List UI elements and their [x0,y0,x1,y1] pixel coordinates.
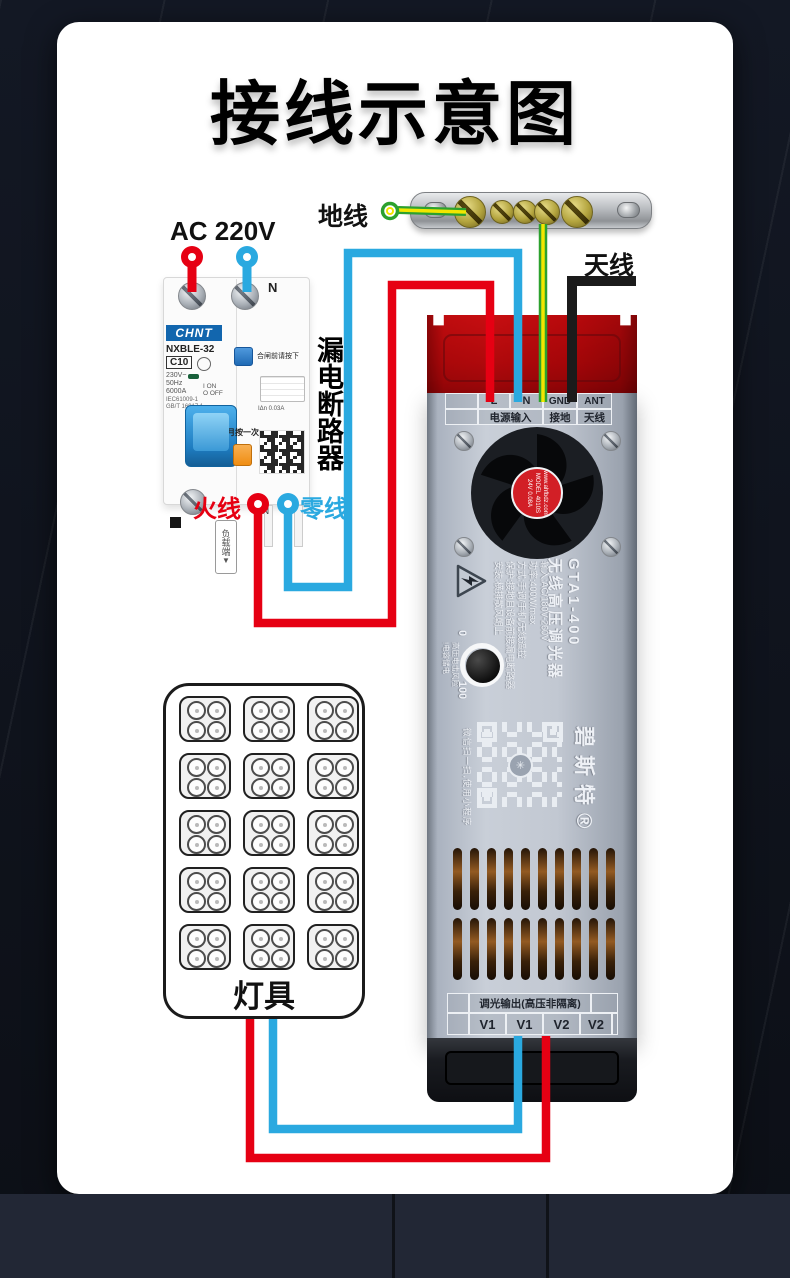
poster-background: 接线示意图 地线 天线 AC 220V N CHNT NXBLE-32 C10 … [0,0,790,1278]
lamp-led [315,835,334,854]
input-terminal-N: N [510,393,543,409]
vent-grille [447,840,619,992]
vent-slot [521,848,530,910]
vent-slot [555,848,564,910]
lamp-led [315,815,334,834]
lamp-led [271,949,290,968]
status-indicator [188,374,199,379]
lamp-module [307,696,359,742]
lamp-led [207,758,226,777]
lamp-led [271,758,290,777]
breaker-brand-logo: CHNT [166,325,222,341]
breaker-breaking-capacity: 6000A [166,388,186,395]
lamp-led [207,872,226,891]
vent-slot [538,848,547,910]
qr-module [301,470,305,474]
dimmer-bottom-cap-panel [445,1051,619,1085]
breaker-standard-1: IEC61009-1 [166,397,198,403]
breaker-test-button [233,444,252,466]
input-terminal-cell-empty [445,393,478,409]
output-cell-empty [612,1013,618,1035]
dimmer-warning-text: 高压电击风险 !电容储电 [441,642,460,712]
breaker-on-mark: I ON [203,383,216,390]
lamp-led [187,721,206,740]
lamp-led [207,929,226,948]
lamp-led [187,778,206,797]
output-terminal-V2b: V2 [580,1013,612,1035]
vent-slot [572,848,581,910]
input-group-cell-empty [445,409,478,425]
lamp-module [307,924,359,970]
lamp-led [207,892,226,911]
lamp-led [335,721,354,740]
vent-slot [487,848,496,910]
knob-min-label: 0 [456,630,468,636]
breaker-qr-code [259,430,305,474]
vent-slot [453,848,462,910]
down-arrow-icon: ▼ [222,556,230,565]
qr-position-marker [477,722,497,742]
lamp-led [335,835,354,854]
lamp-led [271,835,290,854]
breaker-model: NXBLE-32 [166,344,214,355]
qr-module [487,782,492,787]
vent-slot [606,848,615,910]
vent-slot [487,918,496,980]
qr-module [293,470,297,474]
qr-module [517,727,522,732]
input-terminal-GND: GND [543,393,577,409]
qr-module [557,792,562,797]
lamp-led [207,835,226,854]
lamp-led [251,835,270,854]
qr-module [492,777,497,782]
output-title: 调光输出(高压非隔离) [469,993,591,1013]
lamp-led [251,701,270,720]
ground-bar-screw [454,196,486,228]
lamp-led [271,815,290,834]
lamp-led [335,701,354,720]
output-terminal-V2a: V2 [543,1013,580,1035]
lamp-led [315,758,334,777]
lamp-led [315,892,334,911]
breaker-reset-note: 合闸前请按下 [257,351,299,361]
vent-slot [606,918,615,980]
spec-input: 输入:AC/180V-260V [538,561,550,716]
dimmer-knob [466,649,500,683]
lamp-led [207,815,226,834]
qr-module [492,752,497,757]
ground-bar-screw [534,199,560,225]
knob-max-label: 100 [456,681,468,699]
lamp-led [271,721,290,740]
vent-slot [572,918,581,980]
lamp-module [307,753,359,799]
breaker-off-mark: O OFF [203,390,223,397]
output-terminal-V1b: V1 [506,1013,543,1035]
input-group-ground: 接地 [543,409,577,425]
lamp-led [187,758,206,777]
input-terminal-ANT: ANT [577,393,612,409]
output-cell-empty [591,993,618,1013]
vent-slot [589,918,598,980]
lamp-module [243,753,295,799]
qr-module [537,732,542,737]
input-group-antenna: 天线 [577,409,612,425]
vent-slot [589,848,598,910]
lamp-led [251,929,270,948]
qr-module [286,470,290,474]
lamp-module [243,810,295,856]
qr-module [264,442,268,446]
lamp-led [271,701,290,720]
dimmer-model-name: GTA1-400 无线高压调光器 [545,558,583,718]
qr-module [279,470,283,474]
input-terminal-L: L [478,393,510,409]
breaker-voltage: 230V~ [166,372,186,379]
qr-module [537,782,542,787]
lamp-led [315,949,334,968]
qr-module [271,470,275,474]
qr-module [512,782,517,787]
input-group-power: 电源输入 [478,409,543,425]
breaker-frequency: 50Hz [166,380,182,387]
neutral-wire-label: 零线 [300,489,348,524]
lamp-led [335,778,354,797]
high-voltage-warning-icon [454,564,488,598]
lamp-led [251,721,270,740]
lamp-led [251,949,270,968]
live-wire-label: 火线 [193,489,241,524]
lamp-led [315,701,334,720]
breaker-leakage-current: IΔn 0.03A [258,406,284,412]
lamp-module [179,810,231,856]
lamp-led [187,949,206,968]
vent-slot [538,918,547,980]
cooling-fan: www.ahfbdz.com MODEL 4010S 24V 0.08A [468,424,606,562]
qr-module [557,782,562,787]
breaker-top-screw-right [231,282,259,310]
lamp-led [315,721,334,740]
lamp-led [251,872,270,891]
fan-sticker-url: www.ahfbdz.com [542,469,548,515]
qr-module [502,802,507,807]
warning-line-2: !电容储电 [441,642,451,712]
lamp-led [251,892,270,911]
breaker-din-clip [170,517,181,528]
lamp-led [207,701,226,720]
qr-module [542,777,547,782]
breaker-neutral-mark-bottom: N [262,506,269,517]
dimmer-model: GTA1-400 [564,558,583,718]
dimmer-top-cap-panel [443,334,621,382]
lamp-module [243,696,295,742]
lamp-led [251,778,270,797]
lamp-module [179,924,231,970]
qr-module [542,752,547,757]
breaker-neutral-mark-top: N [268,280,277,295]
vent-slot [470,848,479,910]
dimmer-specs: 输入:AC/180V-260V 功率:400W/max 方式:手调/手机/无线遥… [492,561,550,716]
vent-slot [470,918,479,980]
lamp-led [187,872,206,891]
fan-sticker-rating: 24V 0.08A [526,479,532,507]
qr-module [264,470,268,474]
lamp-led [335,815,354,834]
qr-module [293,442,297,446]
lamp-led [207,721,226,740]
lamp-led [271,892,290,911]
output-terminal-V1a: V1 [469,1013,506,1035]
ccc-mark-icon [197,357,211,371]
lamp-label: 灯具 [163,971,365,1016]
ground-terminal-bar [410,192,652,229]
qr-module [293,456,297,460]
output-cell-empty [447,1013,469,1035]
vent-slot [521,918,530,980]
ground-bar-screws [411,193,653,230]
lamp-led [207,778,226,797]
qr-module [542,802,547,807]
qr-position-marker [477,788,497,808]
lamp-led [335,872,354,891]
qr-module [517,802,522,807]
qr-module [512,732,517,737]
qr-module [537,757,542,762]
warning-line-1: 高压电击风险 [451,642,461,712]
lamp-fixture [163,683,365,1019]
vent-slot [453,918,462,980]
fan-sticker-model: MODEL 4010S [534,473,540,513]
qr-note: 微信扫一扫,使用小程序 [461,728,473,848]
lamp-module [179,696,231,742]
qr-module [487,757,492,762]
spec-mounting: 安装:横排散风朝上 [492,561,504,716]
ground-wire-label: 地线 [318,197,368,233]
load-side-tab: 负载端 ▼ [215,520,237,574]
breaker-pole-divider [236,279,237,503]
qr-module [279,442,283,446]
qr-module [552,802,557,807]
qr-module [557,742,562,747]
qr-module [527,802,532,807]
output-cell-empty [447,993,469,1013]
ac-input-label: AC 220V [170,216,276,247]
qr-position-marker [543,722,563,742]
lamp-led [187,835,206,854]
lamp-module [179,753,231,799]
ground-bar-screw [490,200,514,224]
breaker-name-label: 漏电断路器 [312,336,343,471]
lamp-led [271,872,290,891]
lamp-led [187,892,206,911]
lamp-led [187,701,206,720]
spec-protection: 保护:接地且设备前接漏电断路器 [504,561,516,716]
lamp-led [335,929,354,948]
breaker-reset-button [234,347,253,366]
lamp-led [271,929,290,948]
lamp-led [335,758,354,777]
lamp-led [335,949,354,968]
lamp-led [315,929,334,948]
lamp-led [187,929,206,948]
qr-logo-icon: ✳ [508,753,533,778]
lamp-led [315,872,334,891]
lamp-module [307,867,359,913]
lamp-module [243,867,295,913]
vent-slot [504,848,513,910]
lamp-led [251,758,270,777]
page-title: 接线示意图 [57,58,733,159]
qr-module [279,456,283,460]
vent-slot [504,918,513,980]
background-bottom-band [0,1194,790,1278]
lamp-module [243,924,295,970]
qr-module [557,757,562,762]
qr-module [264,456,268,460]
breaker-top-screw-left [178,282,206,310]
lamp-led [335,892,354,911]
lamp-module [179,867,231,913]
ground-bar-screw [561,196,593,228]
breaker-toggle-face [193,413,229,451]
qr-module [557,767,562,772]
vent-slot [555,918,564,980]
antenna-label: 天线 [584,246,634,282]
breaker-rating: C10 [166,356,192,369]
lamp-led [271,778,290,797]
spec-power: 功率:400W/max [527,561,539,716]
load-side-label: 负载端 [220,529,233,556]
trip-curve-diagram [260,376,305,402]
lamp-led [251,815,270,834]
lamp-led [315,778,334,797]
spec-control: 方式:手调/手机/无线遥控 [515,561,527,716]
lamp-led [207,949,226,968]
lamp-led [187,815,206,834]
lamp-module [307,810,359,856]
